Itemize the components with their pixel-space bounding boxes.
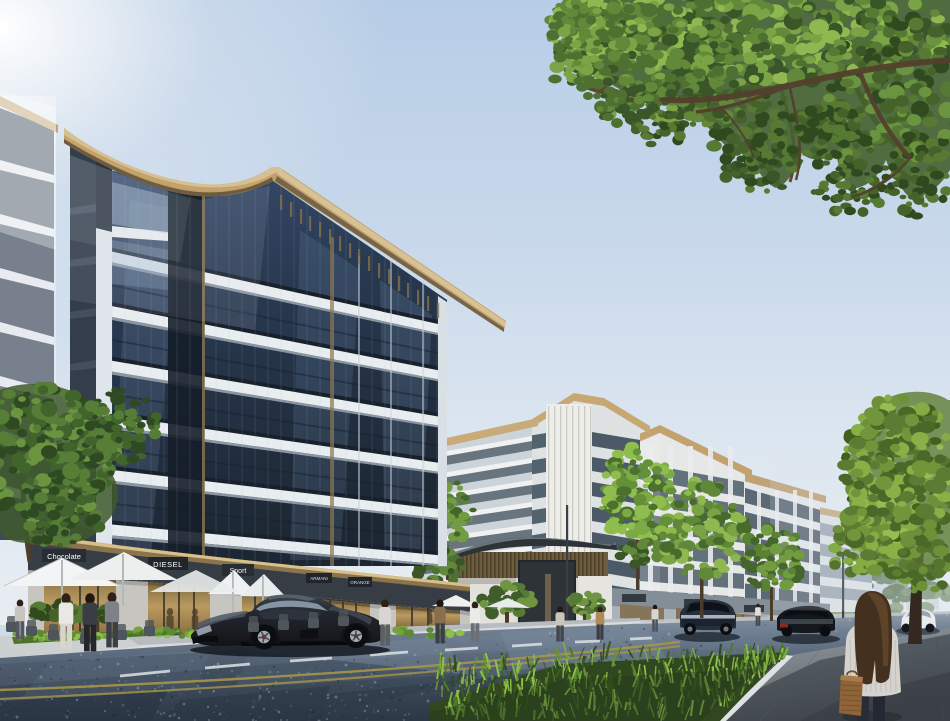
- svg-text:ARMANI: ARMANI: [310, 576, 328, 581]
- svg-text:DIESEL: DIESEL: [153, 560, 183, 569]
- svg-text:ORANGE: ORANGE: [350, 580, 370, 585]
